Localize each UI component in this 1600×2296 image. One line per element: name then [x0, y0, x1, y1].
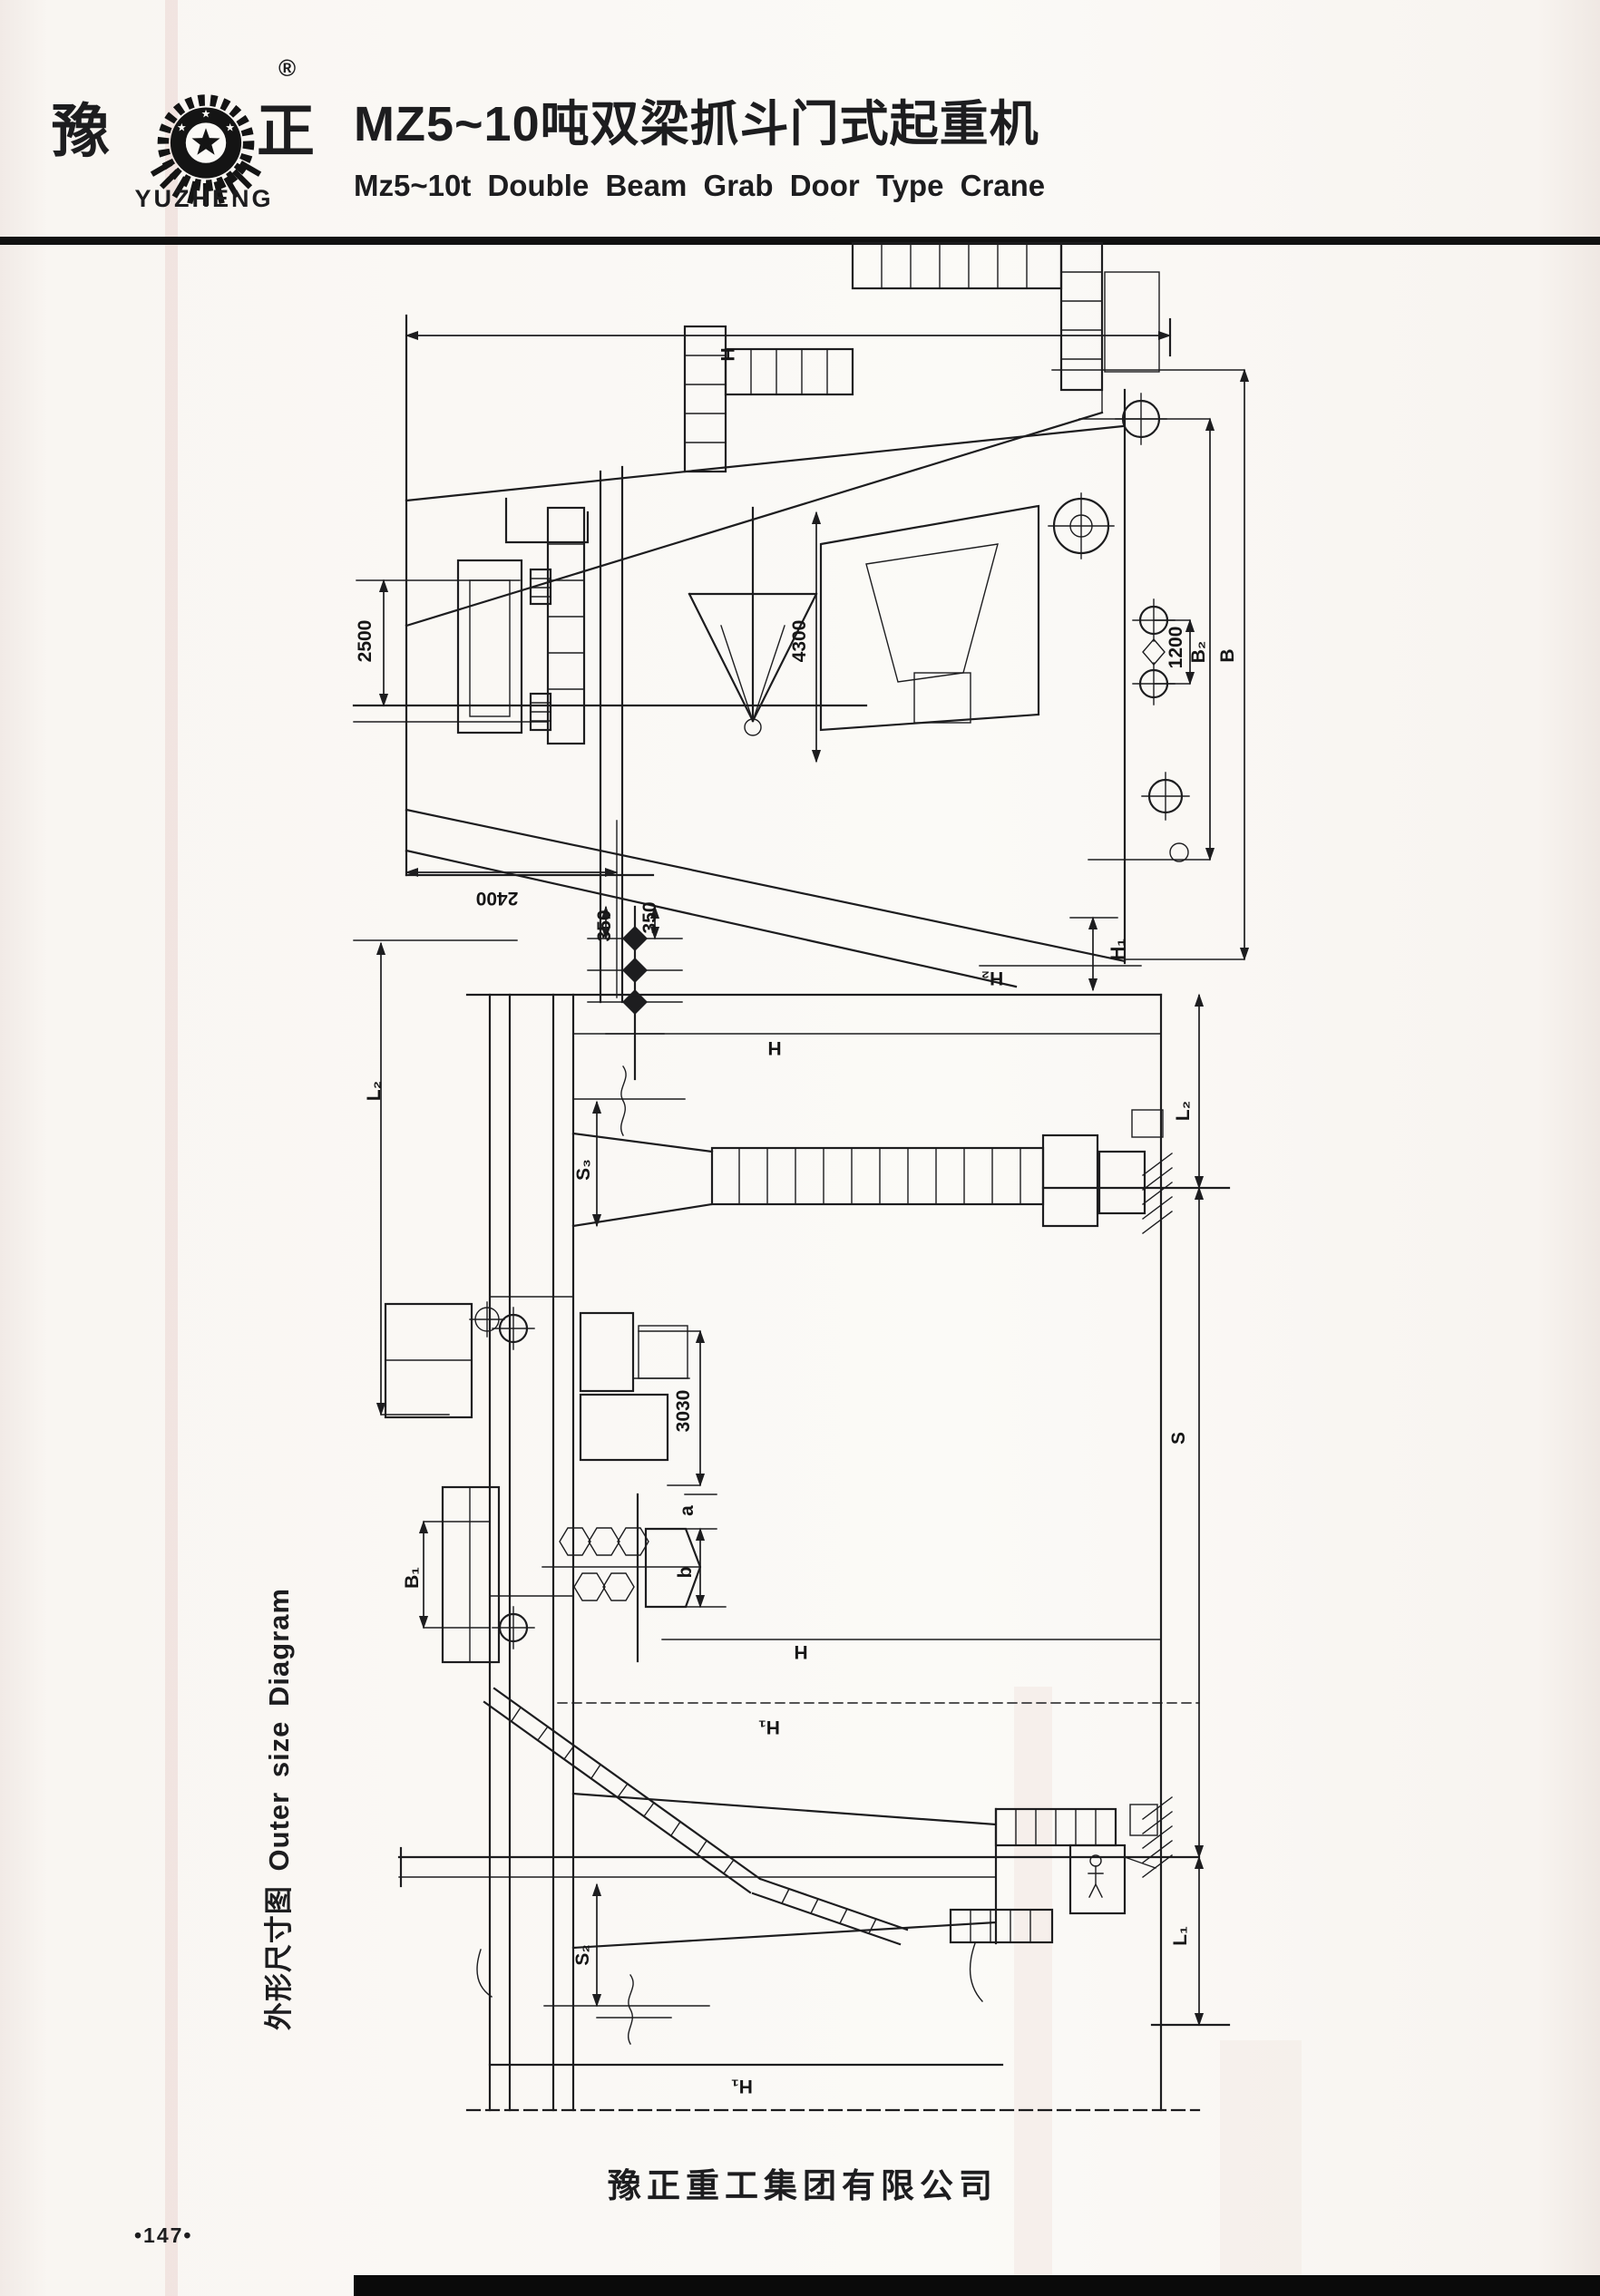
- dim-label: H₁: [731, 2075, 753, 2097]
- dim-label: 2500: [355, 620, 376, 663]
- dim-label: L₁: [1170, 1926, 1192, 1946]
- dim-label: B₁: [402, 1567, 424, 1589]
- dim-label: B₂: [1188, 641, 1210, 664]
- dim-label: S: [1168, 1432, 1190, 1445]
- dim-label: L₂: [1173, 1101, 1195, 1121]
- dim-label: H₁: [758, 1716, 780, 1737]
- dim-label: H: [794, 1640, 807, 1662]
- dim-label: b: [675, 1567, 697, 1579]
- dim-label: H: [716, 347, 737, 361]
- dim-label: 3030: [673, 1390, 695, 1433]
- dim-label: 2400: [476, 887, 519, 909]
- side-caption: 外形尺寸图 Outer size Diagram: [256, 1519, 294, 2099]
- scan-bottom-bar: [354, 2275, 1600, 2296]
- company-name: 豫正重工集团有限公司: [349, 2158, 1256, 2207]
- dim-label: a: [677, 1505, 698, 1516]
- dim-label: S₂: [572, 1944, 594, 1965]
- dim-label: 4300: [789, 620, 811, 663]
- dim-label: 350: [639, 901, 661, 933]
- dim-label: 1200: [1166, 627, 1187, 669]
- dim-label: S₃: [573, 1159, 595, 1181]
- front-view-drawing: [354, 940, 1229, 2110]
- dim-label: B: [1217, 648, 1239, 662]
- outline-dimension-drawing: [0, 0, 1600, 2296]
- scanned-page: 豫 ® 正 YUZHENG MZ5~10吨双梁: [0, 0, 1600, 2296]
- dim-label: H: [767, 1036, 781, 1058]
- dim-label: L₂: [364, 1081, 385, 1101]
- dim-label: H₂: [981, 967, 1004, 988]
- page-number: •147•: [134, 2223, 192, 2248]
- dim-label: H₁: [1107, 939, 1129, 960]
- dim-label: 350: [594, 910, 616, 941]
